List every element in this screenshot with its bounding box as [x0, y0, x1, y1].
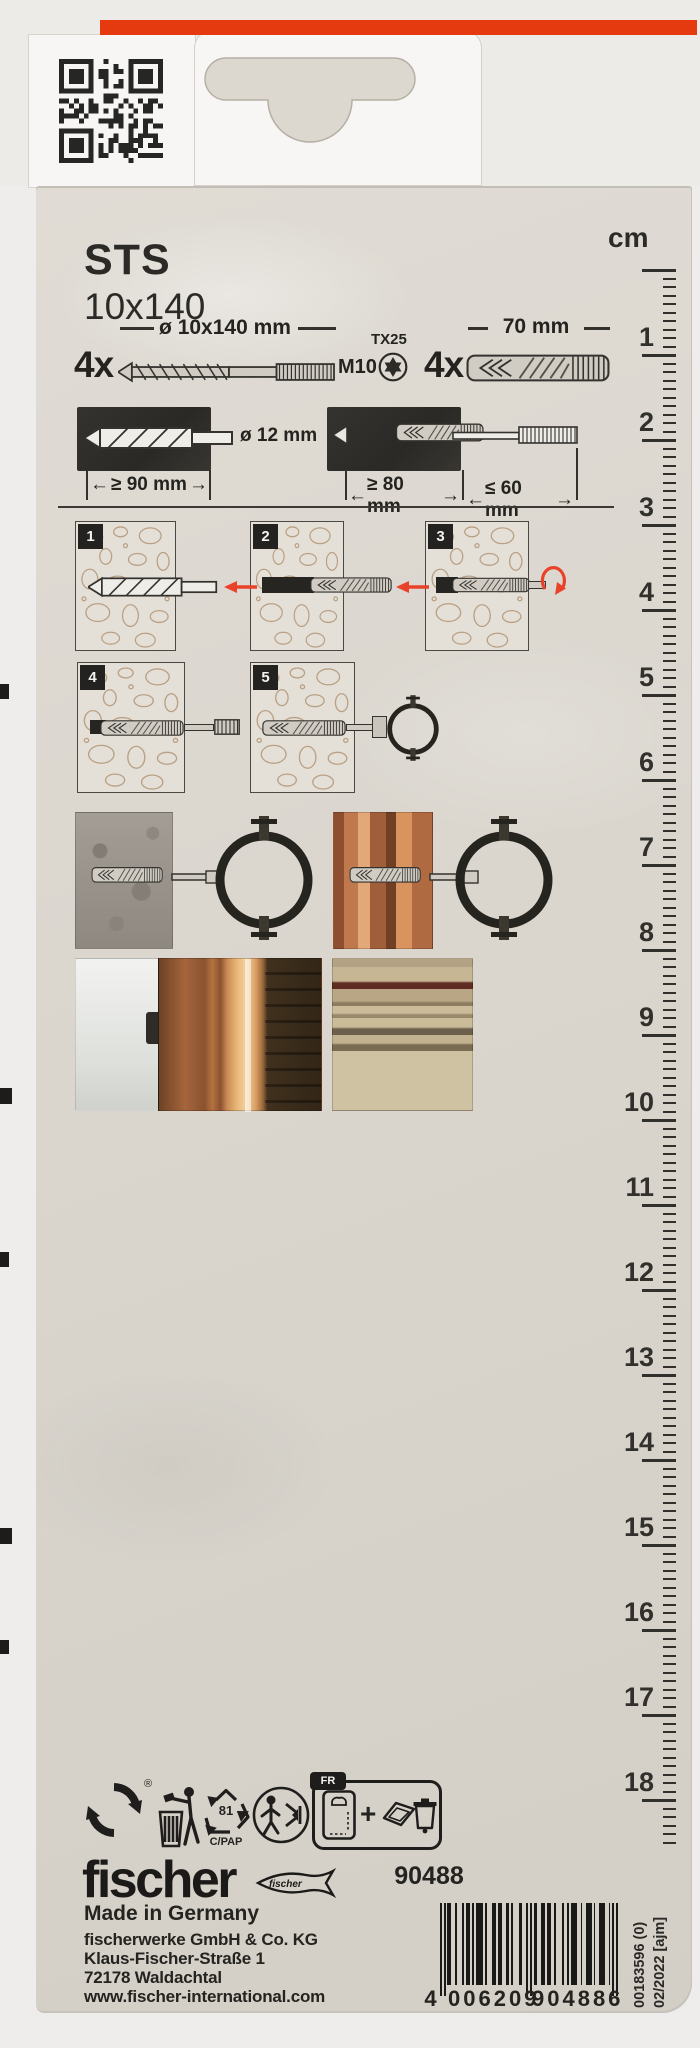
ean-digits-right: 904886 — [532, 1986, 612, 2012]
article-number: 90488 — [392, 1862, 466, 1891]
address-line: Klaus-Fischer-Straße 1 — [84, 1949, 325, 1968]
step-number: 5 — [253, 665, 278, 690]
photo-copper-pipes — [158, 958, 322, 1111]
dim-dash — [468, 327, 488, 330]
screw-quantity: 4x — [74, 344, 113, 386]
step-number: 1 — [78, 524, 103, 549]
ruler-unit-label: cm — [608, 222, 648, 254]
registered-mark: ® — [144, 1778, 152, 1790]
step1-drill — [88, 574, 218, 600]
clamp-ring-b-icon — [446, 810, 562, 946]
made-in-label: Made in Germany — [84, 1902, 259, 1926]
dim-dash — [584, 327, 610, 330]
edge-mark — [0, 684, 9, 699]
step-number: 3 — [428, 524, 453, 549]
fr-label: FR — [310, 1772, 346, 1790]
ean-digit-lead: 4 — [422, 1986, 442, 2012]
fixture-max: ≤ 60 mm — [485, 478, 555, 522]
thread-size: M10 — [338, 356, 377, 379]
dim-endbar — [86, 470, 88, 500]
address-line: fischerwerke GmbH & Co. KG — [84, 1930, 325, 1949]
brand-wordmark: fischer — [82, 1850, 235, 1910]
step3-rotate-arrow-icon — [538, 558, 568, 596]
edge-mark — [0, 1640, 9, 1654]
tray-icon — [382, 1800, 416, 1830]
step4-bolt-thread — [214, 719, 240, 735]
dim-endbar — [576, 448, 578, 500]
print-code-1: 00183596 (0) — [632, 1922, 648, 2008]
triman-icon — [252, 1782, 310, 1846]
step2-plug — [310, 571, 392, 599]
anchor-depth: ≥ 80 mm — [367, 474, 441, 518]
plus-sign: + — [360, 1798, 376, 1830]
address-line: www.fischer-international.com — [84, 1987, 325, 2006]
product-title: STS — [84, 236, 171, 285]
step5-plug — [262, 714, 346, 742]
step-number: 2 — [253, 524, 278, 549]
step4-bolt-shank — [184, 724, 214, 731]
fish-logo-icon: fischer — [254, 1868, 338, 1898]
drill-diameter: ø 12 mm — [240, 425, 317, 447]
company-address: fischerwerke GmbH & Co. KG Klaus-Fischer… — [84, 1930, 325, 2006]
step5-clamp-ring-icon — [382, 692, 444, 764]
torx-icon — [378, 352, 408, 382]
ean-digits-left: 006209 — [448, 1986, 528, 2012]
plug-screw-drawing — [333, 420, 578, 450]
green-dot-icon — [84, 1780, 144, 1840]
packaging-photo: STS 10x140 cm 12345678910111213141516171… — [0, 0, 700, 2048]
clamp-ring-a-icon — [206, 810, 322, 946]
waste-bin-icon — [412, 1796, 438, 1834]
anchor-depth-dim: ← ≥ 80 mm → — [348, 474, 460, 518]
dim-endbar — [462, 470, 464, 500]
dim-endbar — [209, 470, 211, 500]
recycle-code: 81 — [202, 1803, 250, 1818]
edge-mark — [0, 1528, 12, 1544]
step3-plug — [452, 571, 530, 599]
plug-length: 70 mm — [493, 315, 579, 339]
screw-dimension: ø 10x140 mm — [155, 316, 295, 340]
dim-dash — [298, 327, 336, 330]
step2-arrow-icon — [396, 579, 430, 595]
anchor-assembly-a — [86, 862, 220, 892]
edge-mark — [0, 1088, 12, 1104]
drill-depth: ≥ 90 mm — [111, 474, 187, 496]
dim-dash — [120, 327, 154, 330]
blister-card-icon — [322, 1790, 356, 1840]
red-accent-bar — [100, 20, 697, 35]
step-number: 4 — [80, 665, 105, 690]
plug-drawing — [466, 348, 610, 388]
barcode-bars — [440, 1903, 618, 1998]
print-code-2: 02/2022 [ajm] — [652, 1917, 668, 2008]
drill-bit-drawing — [84, 424, 234, 452]
drill-depth-dim: ← ≥ 90 mm → — [90, 474, 208, 496]
plug-quantity: 4x — [424, 344, 463, 386]
recycle-material: C/PAP — [198, 1836, 254, 1848]
drive-size: TX25 — [371, 331, 407, 348]
svg-text:fischer: fischer — [269, 1879, 303, 1890]
photo-wall-pipes — [332, 958, 473, 1111]
address-line: 72178 Waldachtal — [84, 1968, 325, 1987]
pipe-highlight — [245, 959, 251, 1112]
step5-bolt-shank — [346, 724, 374, 731]
dim-endbar — [345, 470, 347, 500]
fixture-max-dim: ← ≤ 60 mm → — [466, 478, 574, 522]
edge-mark — [0, 1252, 9, 1267]
section-divider — [58, 506, 614, 508]
step4-plug — [100, 714, 184, 742]
hanger-bolt-drawing — [118, 356, 336, 388]
step2-hole — [262, 577, 314, 593]
brick-texture — [265, 959, 321, 1112]
step1-arrow-icon — [224, 579, 258, 595]
